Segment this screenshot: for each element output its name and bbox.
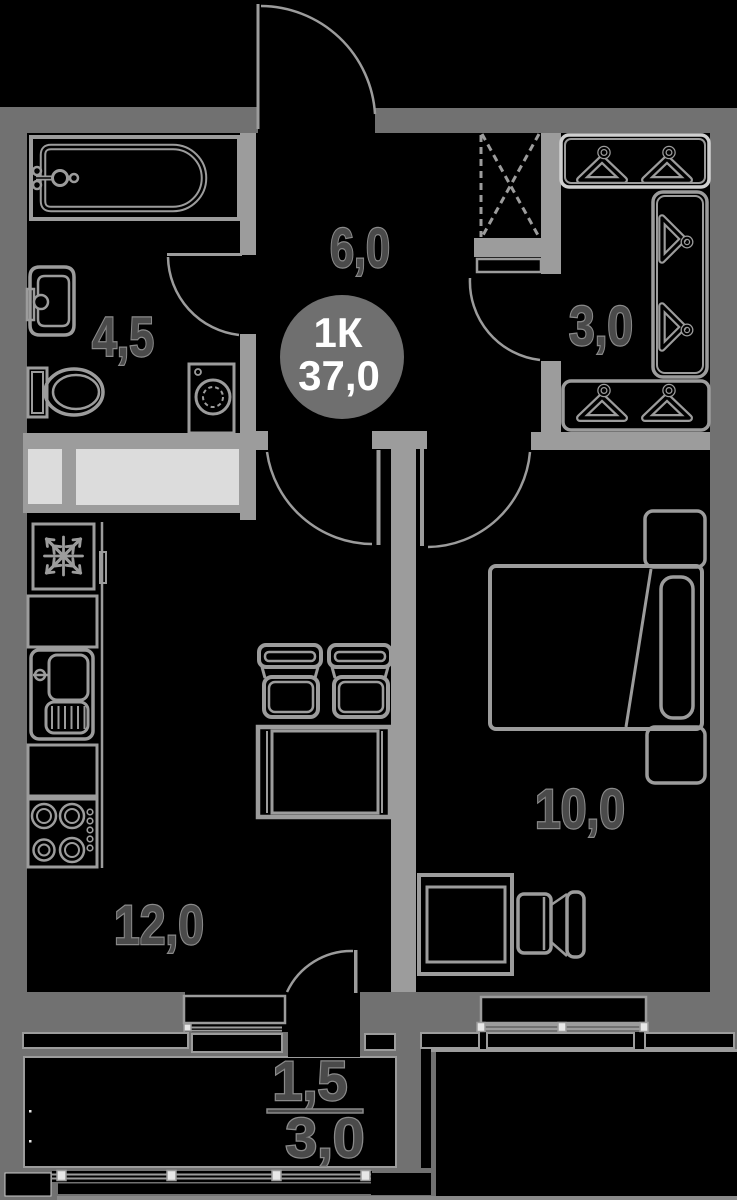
svg-text:10,0: 10,0 [535,777,625,840]
svg-text:6,0: 6,0 [330,216,390,279]
svg-text:3,0: 3,0 [569,294,633,357]
svg-text:4,5: 4,5 [92,305,154,368]
svg-text:3,0: 3,0 [286,1106,365,1169]
svg-text:12,0: 12,0 [114,893,204,956]
svg-text:1,5: 1,5 [273,1049,348,1112]
svg-text:37,0: 37,0 [298,352,380,399]
svg-text:1К: 1К [314,309,363,356]
